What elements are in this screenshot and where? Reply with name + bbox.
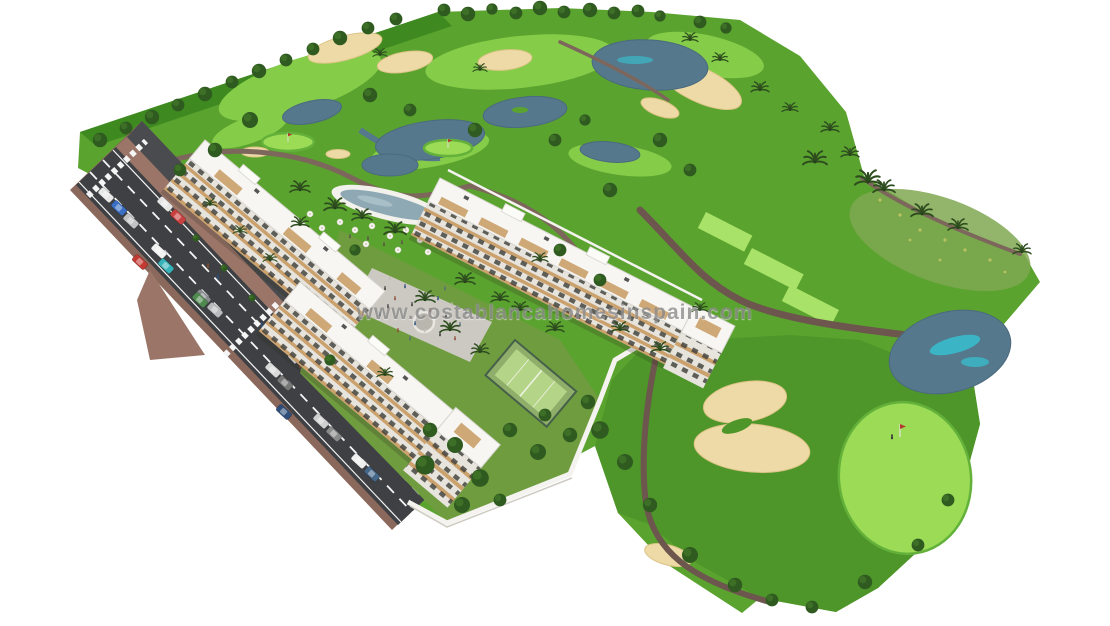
golfer [891,434,893,439]
lake [362,154,418,176]
watermark: www.costablancahomesinspain.com [357,301,754,325]
rendering-canvas: www.costablancahomesinspain.com [0,0,1110,626]
